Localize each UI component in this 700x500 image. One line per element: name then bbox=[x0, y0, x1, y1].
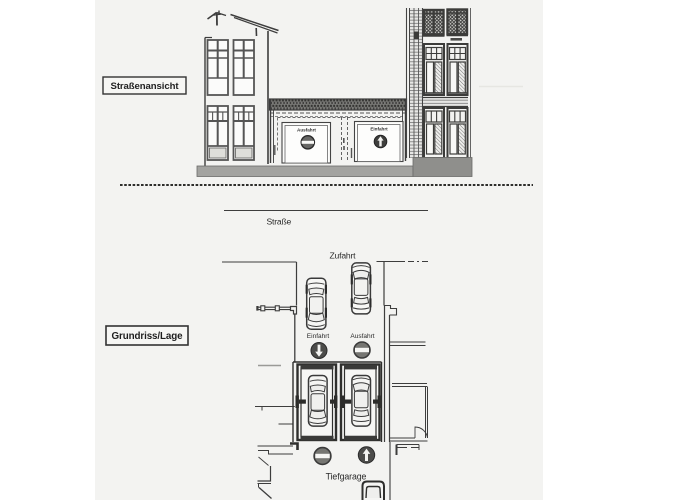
svg-text:Straße: Straße bbox=[267, 217, 292, 227]
svg-text:Einfahrt: Einfahrt bbox=[370, 127, 388, 132]
svg-text:Einfahrt: Einfahrt bbox=[307, 333, 330, 340]
svg-text:Zufahrt: Zufahrt bbox=[330, 251, 357, 261]
svg-text:Ausfahrt: Ausfahrt bbox=[297, 128, 316, 133]
svg-text:Ausfahrt: Ausfahrt bbox=[350, 333, 374, 340]
svg-text:Tiefgarage: Tiefgarage bbox=[326, 472, 367, 482]
svg-text:Straßenansicht: Straßenansicht bbox=[111, 81, 180, 92]
svg-text:Grundriss/Lage: Grundriss/Lage bbox=[111, 331, 183, 342]
